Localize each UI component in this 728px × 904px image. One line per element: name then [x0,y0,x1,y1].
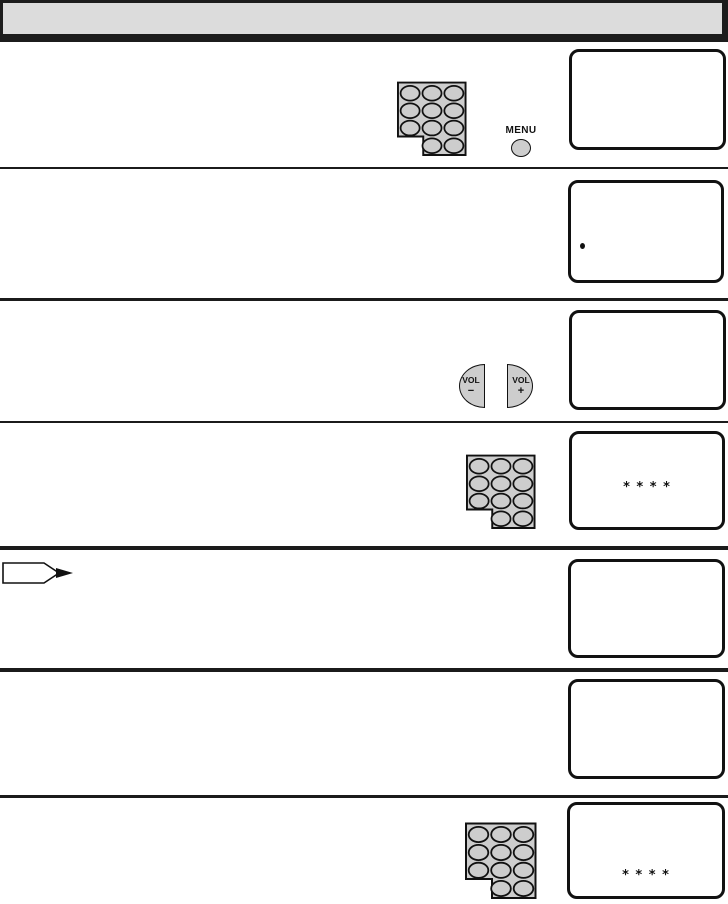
volume-down-sign: − [468,386,474,396]
password-code-display: * * * * [572,481,722,494]
header-title-panel [3,3,722,34]
tv-screen-step6 [568,679,725,779]
numeric-keypad-icon [465,822,537,904]
tv-screen-step1 [569,49,726,150]
tv-screen-step4: * * * * [569,431,725,530]
volume-down-label: VOL [462,376,479,385]
numeric-keypad-icon [397,81,467,162]
step-divider [0,167,728,169]
step-divider [0,795,728,798]
tv-screen-step2 [568,180,724,283]
tv-screen-step3 [569,310,726,410]
tv-screen-step5 [568,559,725,658]
numeric-keypad-icon [466,454,536,535]
note-pointer-icon [2,561,76,590]
step-divider [0,298,728,301]
bullet-dot-icon [580,243,585,249]
password-code-display: * * * * [570,869,722,882]
volume-up-sign: + [518,386,524,396]
tv-screen-step7: * * * * [567,802,725,899]
manual-page: MENU VOL − VOL + * * * * [0,0,728,904]
step-divider [0,421,728,423]
menu-button-icon [511,139,531,157]
menu-button-label: MENU [501,126,541,136]
volume-up-label: VOL [512,376,529,385]
step-divider [0,668,728,672]
volume-down-button-icon: VOL − [459,364,485,408]
volume-up-button-icon: VOL + [507,364,533,408]
step-divider [0,546,728,550]
header-bar [0,0,728,42]
